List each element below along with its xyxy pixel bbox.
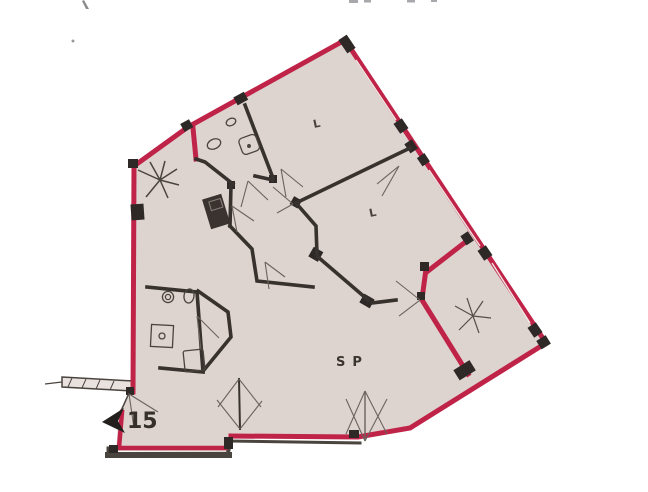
scan-page: L L SP 15 [0, 0, 648, 492]
scan-artifact [72, 0, 438, 43]
entrance-number-label: 15 [127, 409, 158, 434]
room-label-living-dining: SP [336, 355, 369, 370]
boundary-wall [45, 377, 133, 391]
floor-plan-canvas: L L SP 15 [0, 0, 648, 492]
